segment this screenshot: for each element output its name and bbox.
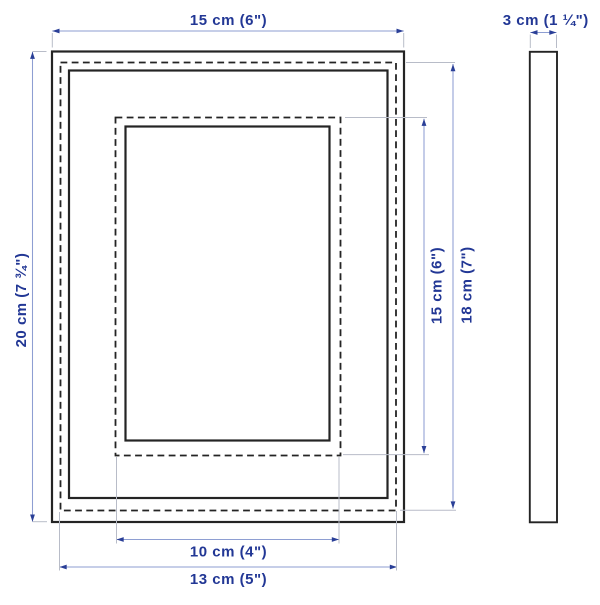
- svg-text:20 cm (7 ¾"): 20 cm (7 ¾"): [13, 253, 30, 348]
- svg-text:18 cm (7"): 18 cm (7"): [458, 246, 475, 323]
- svg-text:15 cm (6"): 15 cm (6"): [190, 12, 267, 29]
- svg-text:13 cm (5"): 13 cm (5"): [190, 571, 267, 588]
- svg-text:10 cm (4"): 10 cm (4"): [190, 544, 267, 561]
- svg-text:3 cm (1 ¼"): 3 cm (1 ¼"): [503, 12, 589, 29]
- svg-text:15 cm (6"): 15 cm (6"): [428, 247, 445, 324]
